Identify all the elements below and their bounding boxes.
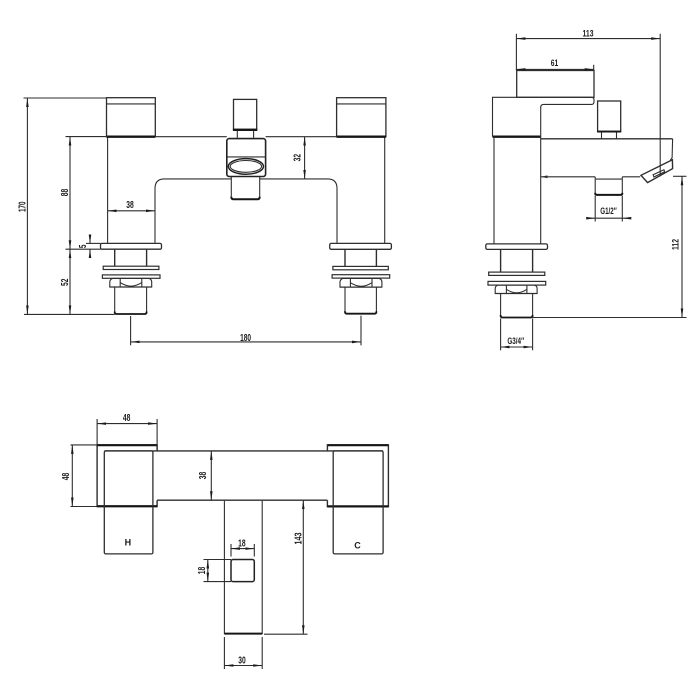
svg-text:38: 38 (126, 200, 134, 211)
svg-text:30: 30 (238, 655, 246, 666)
svg-text:H: H (125, 537, 132, 547)
svg-text:18: 18 (238, 539, 246, 550)
svg-text:113: 113 (583, 29, 594, 39)
svg-text:C: C (354, 541, 361, 551)
svg-text:52: 52 (60, 278, 71, 286)
svg-text:G3/4″: G3/4″ (507, 336, 524, 346)
svg-text:112: 112 (670, 239, 680, 250)
svg-text:170: 170 (17, 201, 28, 212)
svg-text:180: 180 (240, 333, 251, 344)
svg-text:143: 143 (293, 532, 304, 544)
svg-text:61: 61 (551, 58, 559, 68)
svg-text:5: 5 (78, 244, 89, 248)
svg-text:32: 32 (293, 154, 304, 162)
svg-text:48: 48 (123, 413, 131, 424)
svg-text:48: 48 (61, 472, 72, 480)
svg-text:G1/2″: G1/2″ (600, 206, 617, 216)
svg-text:38: 38 (198, 472, 209, 480)
svg-text:88: 88 (60, 188, 71, 196)
svg-text:18: 18 (197, 567, 208, 575)
